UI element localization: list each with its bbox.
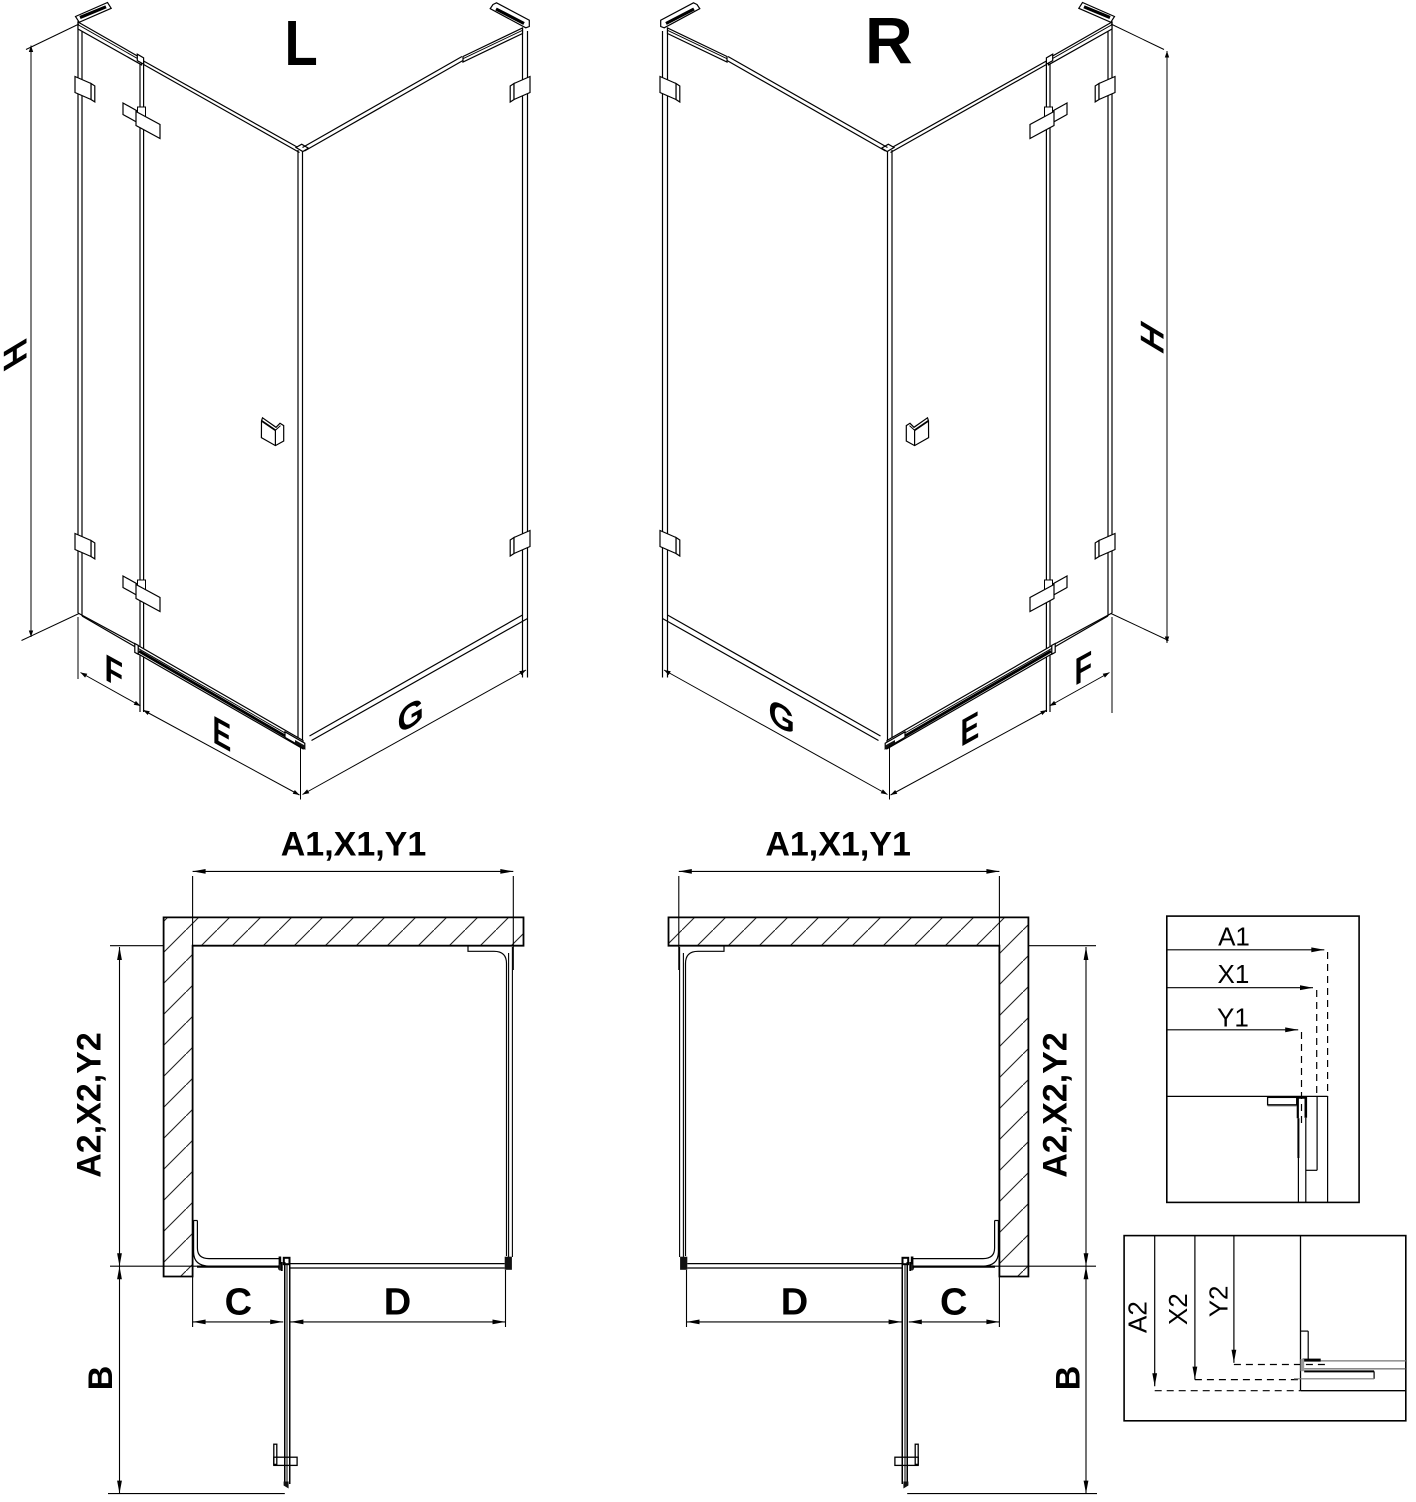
svg-text:A2,X2,Y2: A2,X2,Y2 [71, 1032, 109, 1178]
svg-text:B: B [82, 1366, 120, 1391]
svg-text:A2,X2,Y2: A2,X2,Y2 [1037, 1032, 1075, 1178]
svg-text:A2: A2 [1123, 1301, 1153, 1333]
svg-text:C: C [225, 1282, 252, 1324]
svg-text:X2: X2 [1163, 1293, 1193, 1325]
svg-text:C: C [940, 1282, 967, 1324]
svg-text:B: B [1050, 1366, 1088, 1391]
svg-text:X1: X1 [1217, 959, 1249, 989]
svg-text:D: D [781, 1282, 808, 1324]
svg-text:A1: A1 [1218, 922, 1250, 952]
svg-text:L: L [285, 7, 318, 79]
svg-text:A1,X1,Y1: A1,X1,Y1 [765, 826, 911, 864]
svg-text:Y1: Y1 [1217, 1002, 1249, 1032]
svg-text:D: D [384, 1282, 411, 1324]
svg-text:Y2: Y2 [1203, 1285, 1233, 1317]
svg-text:R: R [865, 3, 913, 77]
svg-text:A1,X1,Y1: A1,X1,Y1 [281, 826, 427, 864]
